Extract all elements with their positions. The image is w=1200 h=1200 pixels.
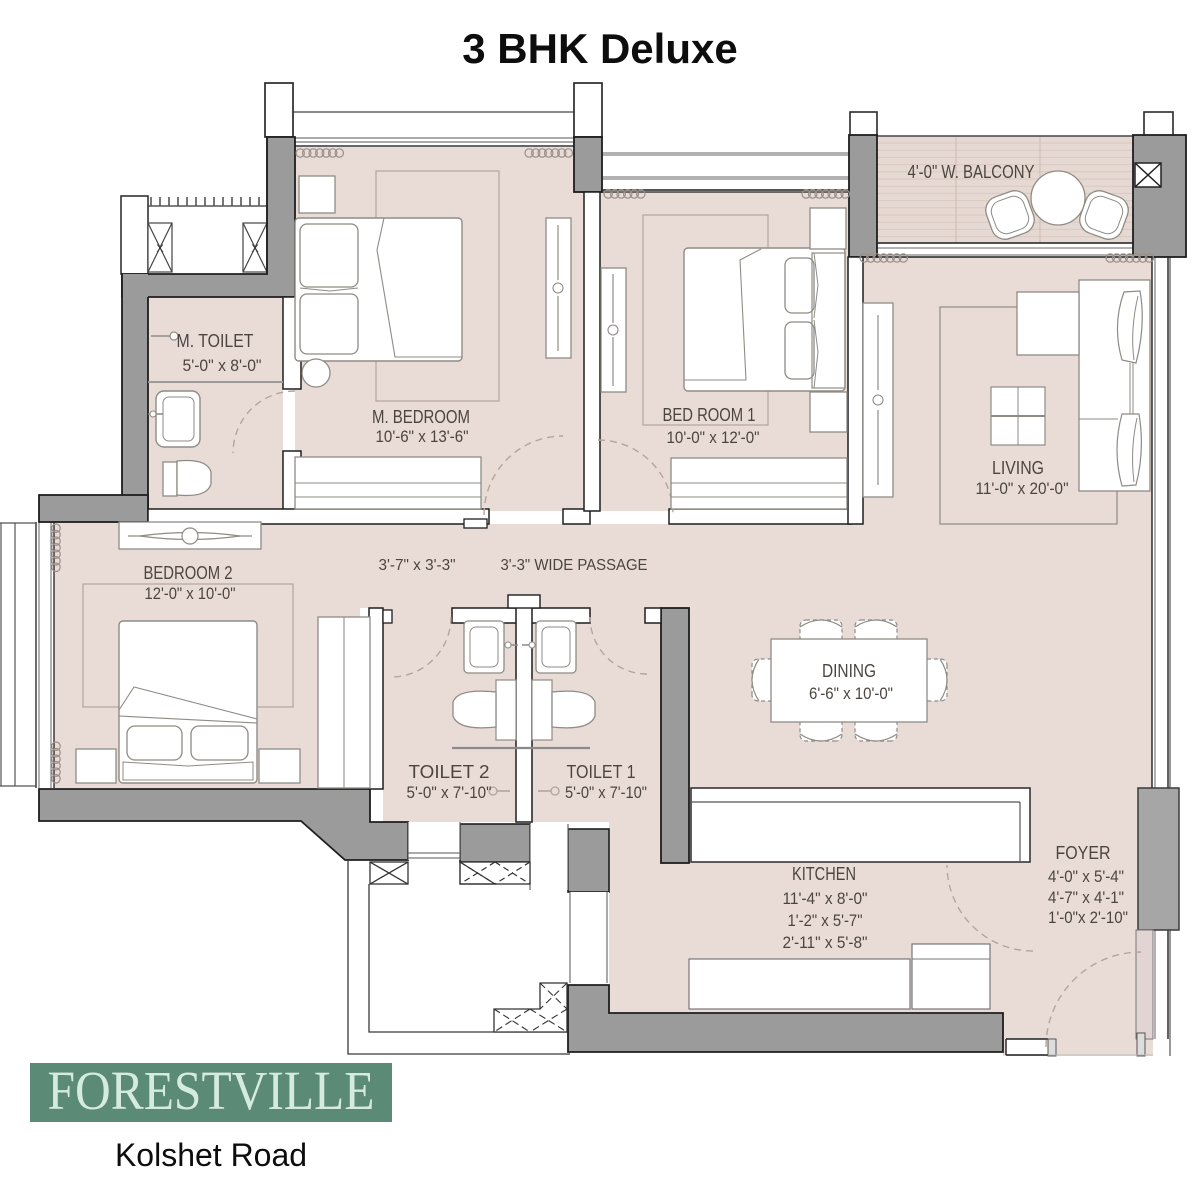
svg-text:5'-0" x 7'-10": 5'-0" x 7'-10" [565,783,647,802]
svg-text:M. TOILET: M. TOILET [177,331,254,351]
svg-text:3'-7" x 3'-3": 3'-7" x 3'-3" [379,557,456,574]
svg-text:M. BEDROOM: M. BEDROOM [372,407,470,427]
svg-text:10'-6" x 13'-6": 10'-6" x 13'-6" [376,427,469,446]
svg-text:X: X [156,243,164,255]
svg-text:FOYER: FOYER [1056,843,1111,863]
svg-text:3'-3" WIDE PASSAGE: 3'-3" WIDE PASSAGE [501,557,648,574]
svg-text:11'-4" x 8'-0": 11'-4" x 8'-0" [783,889,868,908]
svg-text:X: X [251,243,259,255]
svg-text:TOILET 1: TOILET 1 [567,762,636,782]
svg-text:10'-0" x 12'-0": 10'-0" x 12'-0" [667,428,760,447]
svg-text:KITCHEN: KITCHEN [792,864,856,884]
svg-text:BED ROOM 1: BED ROOM 1 [663,405,756,425]
svg-text:1'-2" x 5'-7": 1'-2" x 5'-7" [788,911,863,930]
svg-text:TOILET 2: TOILET 2 [409,762,490,782]
svg-text:12'-0" x 10'-0": 12'-0" x 10'-0" [145,584,236,603]
svg-text:4'-0" x 5'-4": 4'-0" x 5'-4" [1048,867,1124,886]
svg-text:BEDROOM 2: BEDROOM 2 [144,563,233,583]
svg-text:4'-0" W. BALCONY: 4'-0" W. BALCONY [908,162,1035,182]
svg-text:5'-0" x 8'-0": 5'-0" x 8'-0" [183,356,262,375]
svg-text:DINING: DINING [822,661,876,681]
svg-text:LIVING: LIVING [992,458,1044,478]
svg-text:6'-6" x 10'-0": 6'-6" x 10'-0" [809,684,893,703]
svg-text:3 BHK Deluxe: 3 BHK Deluxe [462,25,737,72]
svg-text:11'-0" x 20'-0": 11'-0" x 20'-0" [976,479,1069,498]
svg-text:2'-11" x 5'-8": 2'-11" x 5'-8" [783,933,868,952]
svg-text:FORESTVILLE: FORESTVILLE [48,1060,375,1121]
svg-text:Kolshet Road: Kolshet Road [115,1137,307,1173]
svg-text:1'-0"x 2'-10": 1'-0"x 2'-10" [1048,908,1128,927]
svg-text:4'-7" x 4'-1": 4'-7" x 4'-1" [1048,888,1124,907]
svg-text:5'-0" x 7'-10": 5'-0" x 7'-10" [407,783,492,802]
